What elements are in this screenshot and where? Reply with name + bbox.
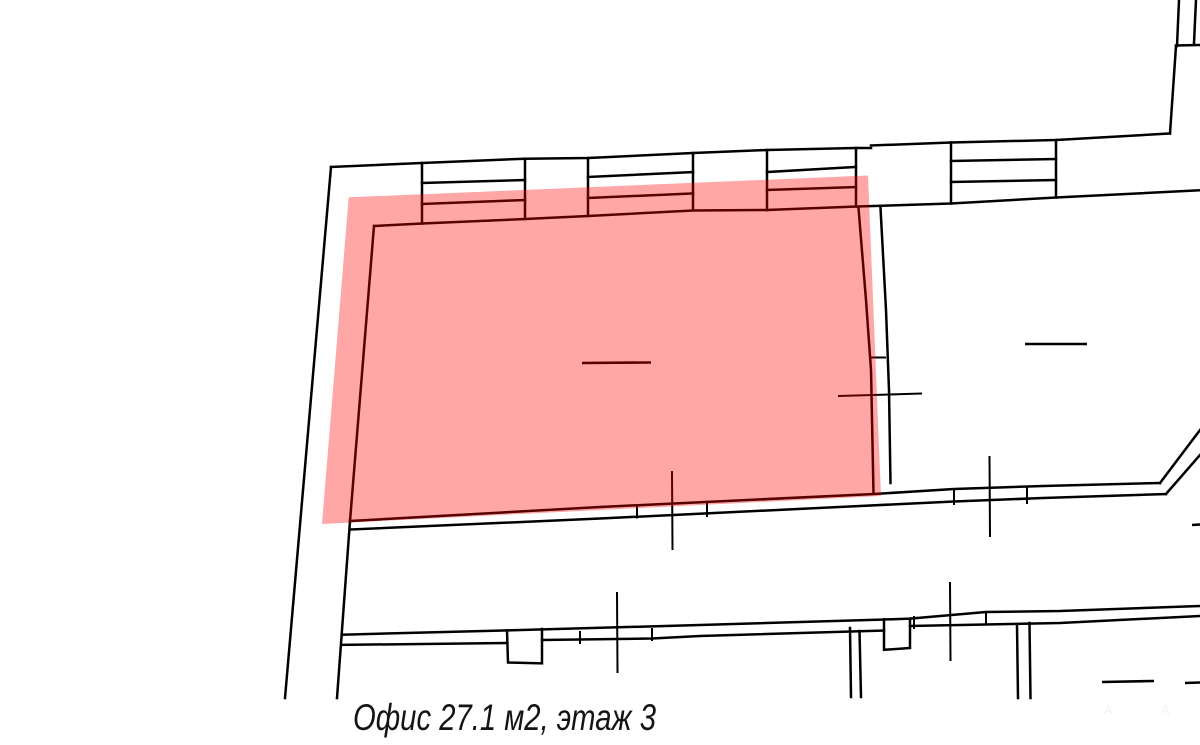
- svg-text:Офис 27.1 м2, этаж 3: Офис 27.1 м2, этаж 3: [353, 697, 656, 738]
- svg-text:A: A: [1161, 702, 1170, 717]
- svg-text:A: A: [1104, 702, 1113, 717]
